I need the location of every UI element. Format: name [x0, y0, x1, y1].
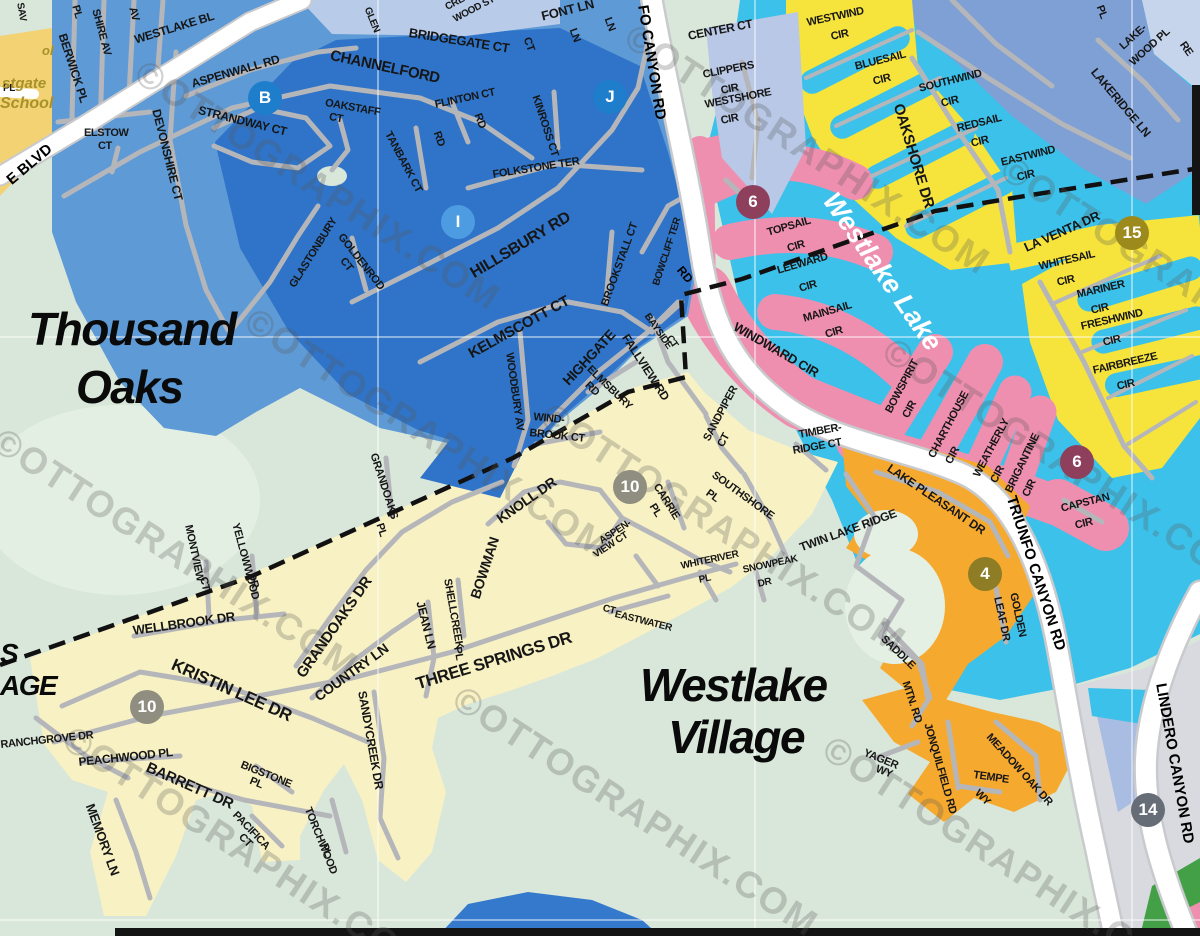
right-bar — [1192, 85, 1200, 215]
street-map: ©OTTOGRAPHIX.COM©OTTOGRAPHIX.COM©OTTOGRA… — [0, 0, 1200, 936]
bottom-bar — [115, 928, 1200, 936]
map-canvas — [0, 0, 1200, 936]
